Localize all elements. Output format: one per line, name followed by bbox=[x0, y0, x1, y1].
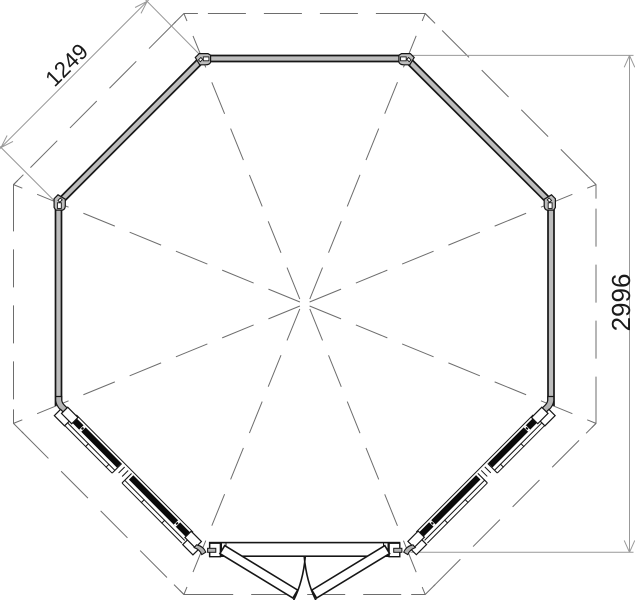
svg-text:2996: 2996 bbox=[606, 274, 635, 332]
